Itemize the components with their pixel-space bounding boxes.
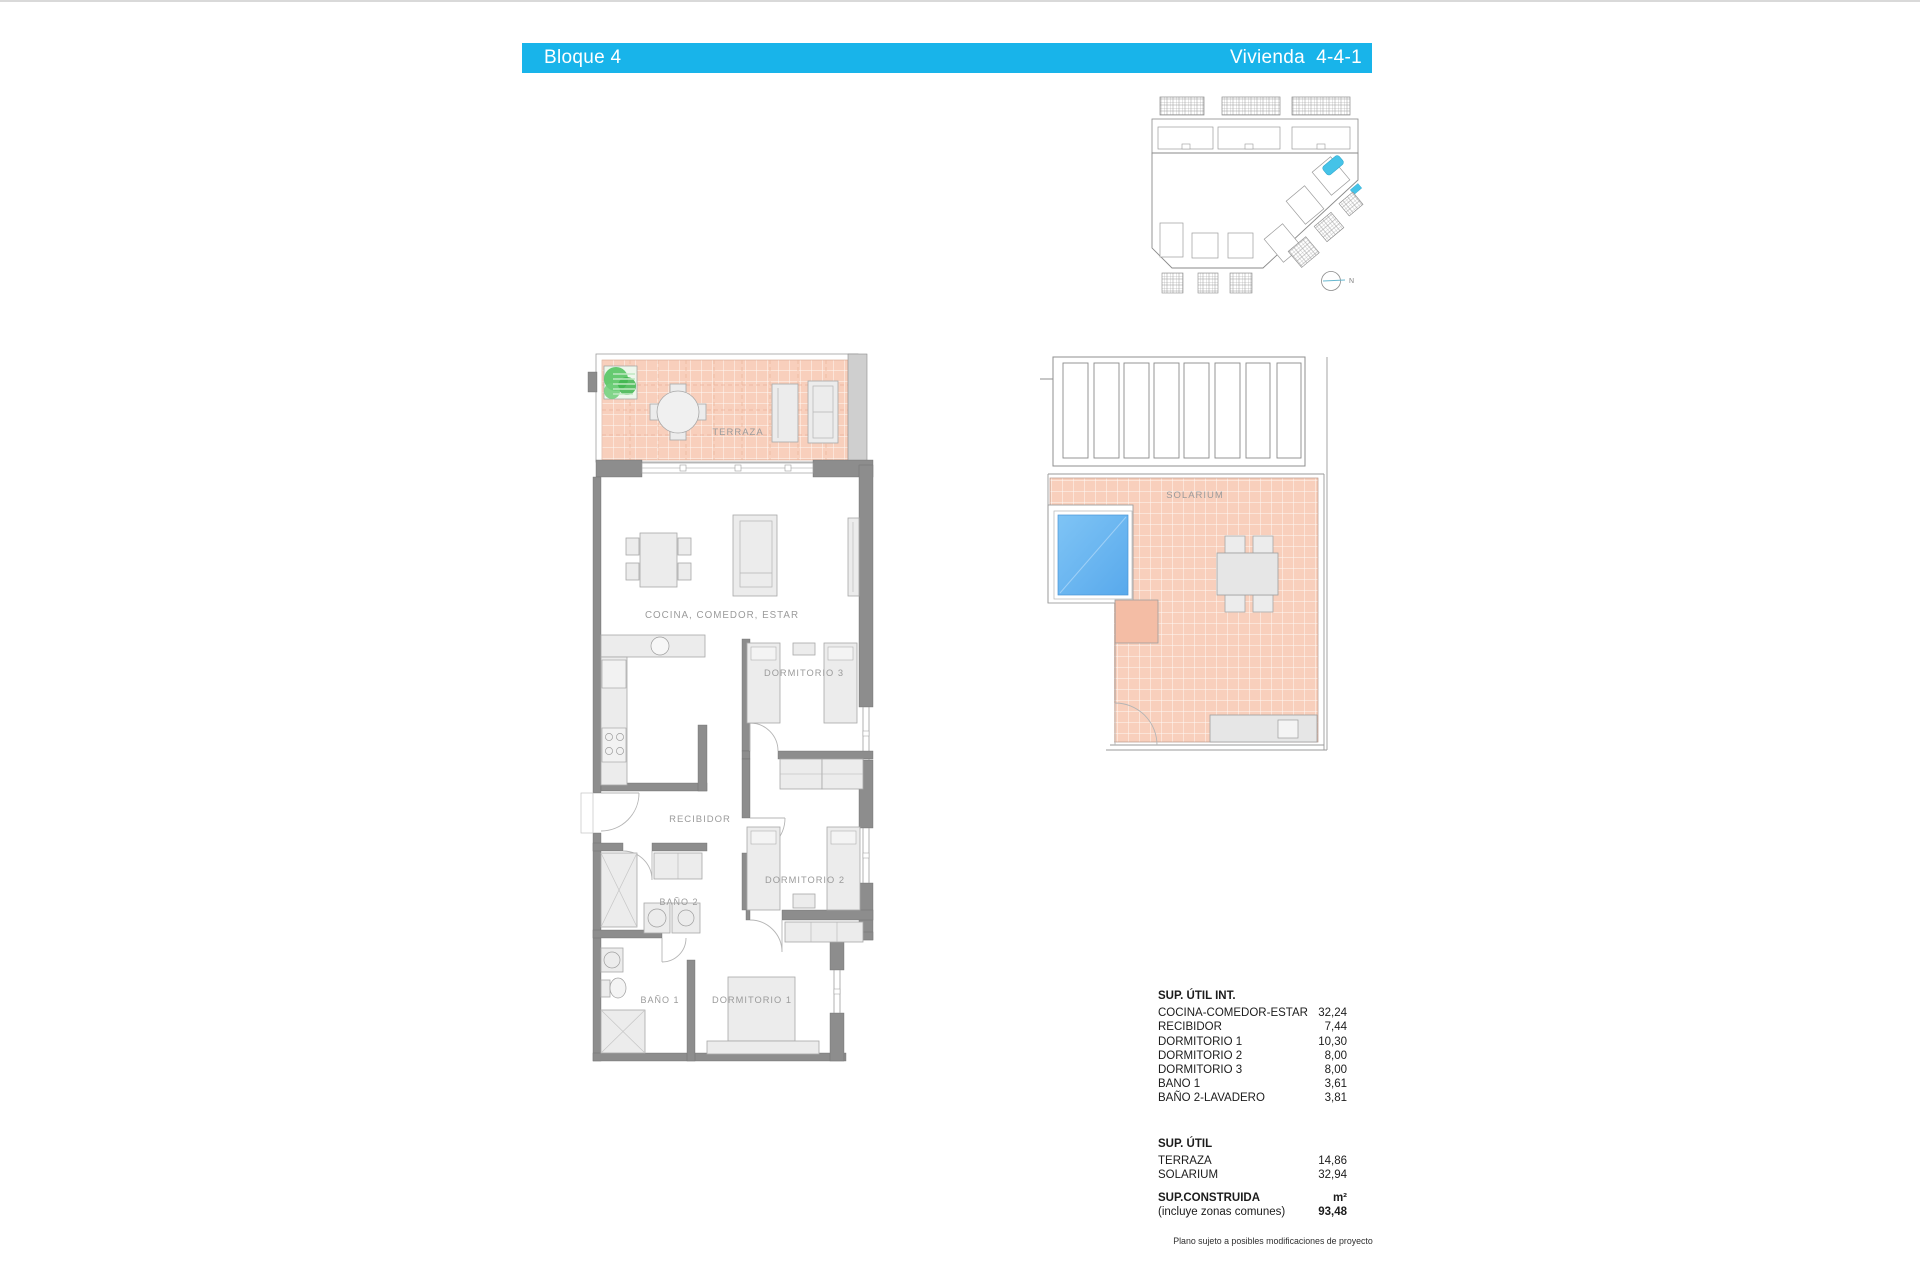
title-bar: Bloque 4 Vivienda 4-4-1 (522, 43, 1372, 73)
terraza-label: TERRAZA (712, 427, 763, 438)
area-summary-table: SUP. ÚTIL INT. COCINA-COMEDOR-ESTAR32,24… (1158, 989, 1393, 1219)
util-int-title: SUP. ÚTIL INT. (1158, 989, 1393, 1003)
entry-landing (581, 793, 593, 833)
double-bed (728, 977, 795, 1041)
kitchen (601, 635, 705, 785)
fridge (602, 660, 626, 688)
table-row: BANO 13,61 (1158, 1077, 1393, 1091)
window-dorm2 (863, 828, 869, 883)
terraza-area: TERRAZA (588, 354, 867, 462)
recibidor-label: RECIBIDOR (669, 814, 731, 825)
pergola (1040, 357, 1305, 466)
solarium-label: SOLARIUM (1166, 490, 1224, 501)
stove (602, 728, 626, 762)
closets (780, 759, 863, 789)
headboard (707, 1041, 819, 1054)
exterior-mask (1049, 603, 1114, 745)
table-row: DORMITORIO 38,00 (1158, 1063, 1393, 1077)
bano2: BAÑO 2 (601, 853, 702, 933)
dormitorio3: DORMITORIO 3 (747, 643, 857, 723)
window-dorm1: <260 y="622"/> (834, 970, 840, 1013)
util-title: SUP. ÚTIL (1158, 1137, 1393, 1151)
table-row: SOLARIUM32,94 (1158, 1168, 1393, 1182)
block-title: Bloque 4 (544, 47, 621, 69)
kitchen-sink (651, 637, 669, 655)
sink-cabinet (672, 903, 700, 933)
plan-sheet: Bloque 4 Vivienda 4-4-1 (0, 0, 1920, 1280)
compass-north-label: N (1349, 278, 1354, 285)
dormitorio2-label: DORMITORIO 2 (765, 875, 845, 885)
entrance-door (601, 793, 639, 831)
pool-area (1048, 505, 1133, 603)
construida-value-row: (incluye zonas comunes) 93,48 (1158, 1205, 1393, 1219)
parking-grids-top (1160, 97, 1350, 115)
bano1-door (662, 938, 686, 962)
table-row: RECIBIDOR7,44 (1158, 1020, 1393, 1034)
dormitorio3-label: DORMITORIO 3 (764, 668, 844, 678)
dining-table (640, 533, 677, 587)
construida-row: SUP.CONSTRUIDA m² (1158, 1191, 1393, 1205)
table-row: DORMITORIO 110,30 (1158, 1035, 1393, 1049)
solarium-floor-plan: SOLARIUM (1040, 348, 1340, 768)
building-row-top (1152, 119, 1358, 153)
solarium-counter (1210, 715, 1317, 742)
nightstand (793, 894, 815, 908)
planter-square (1115, 600, 1158, 643)
table-row: BAÑO 2-LAVADERO3,81 (1158, 1091, 1393, 1105)
terraza-side-wall (848, 354, 867, 462)
compass: N (1322, 272, 1355, 291)
terraza-window-wall (596, 460, 873, 477)
bano1: BAÑO 1 (601, 948, 680, 1053)
dorm1-door (750, 920, 782, 952)
construida-unit: m² (1283, 1191, 1347, 1205)
plant (604, 366, 637, 399)
closet (785, 922, 863, 942)
dormitorio2: DORMITORIO 2 (747, 827, 860, 910)
construida-value: 93,48 (1283, 1205, 1347, 1219)
bano1-label: BAÑO 1 (640, 995, 679, 1005)
dormitorio1-label: DORMITORIO 1 (712, 995, 792, 1005)
shower1 (601, 1010, 645, 1053)
cocina-label: COCINA, COMEDOR, ESTAR (645, 610, 799, 621)
apartment-floor-plan: TERRAZA (580, 348, 890, 1078)
table-row: COCINA-COMEDOR-ESTAR32,24 (1158, 1006, 1393, 1020)
balcony-divider (588, 372, 597, 392)
shower2 (601, 853, 637, 927)
toilet (601, 978, 626, 998)
dorm3-door (750, 723, 778, 751)
table-row: DORMITORIO 28,00 (1158, 1049, 1393, 1063)
bano2-label: BAÑO 2 (659, 897, 698, 907)
sideboard (848, 518, 859, 596)
parking-grids-bottom (1162, 273, 1252, 293)
table-row: TERRAZA14,86 (1158, 1154, 1393, 1168)
sofa (733, 515, 777, 596)
unit-title: Vivienda 4-4-1 (1230, 47, 1362, 69)
nightstand (793, 643, 815, 655)
disclaimer-note: Plano sujeto a posibles modificaciones d… (1148, 1236, 1398, 1246)
living-room: COCINA, COMEDOR, ESTAR (626, 515, 859, 621)
site-key-plan: N (1140, 90, 1430, 320)
page-top-edge (0, 0, 1920, 2)
